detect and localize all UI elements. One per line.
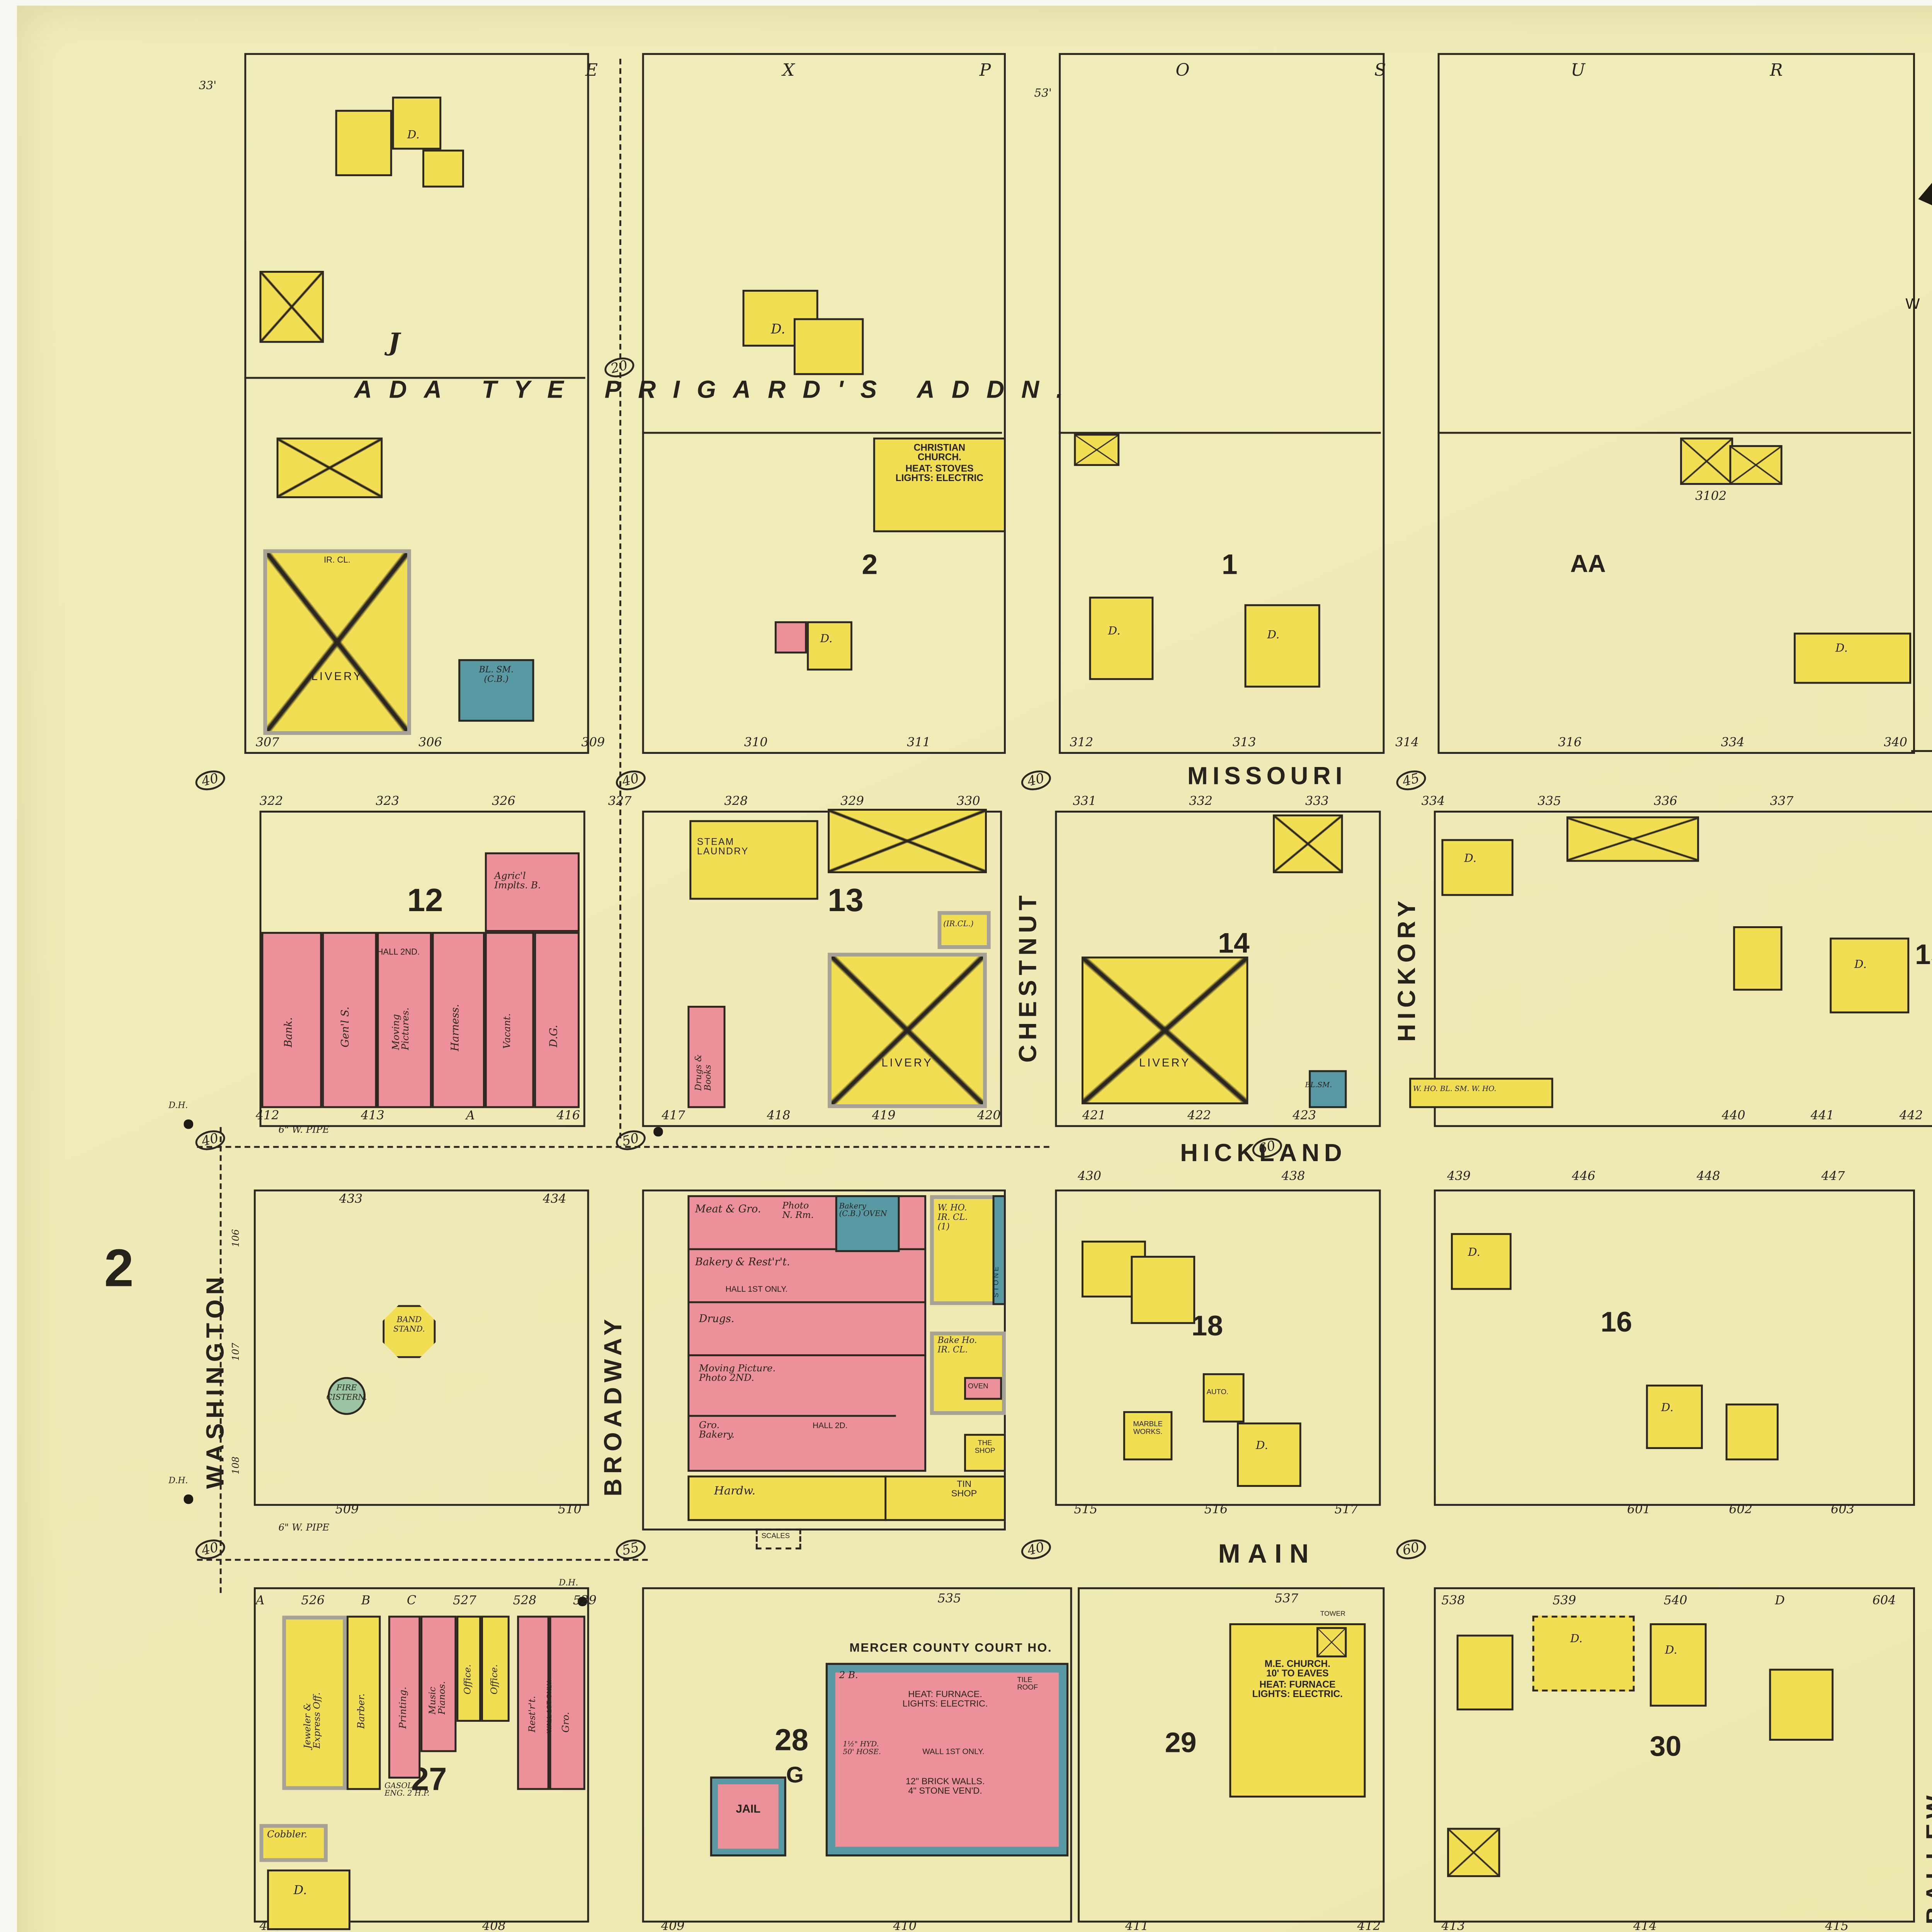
dwelling <box>1532 1616 1635 1691</box>
block-15-number: 15 <box>1915 941 1932 972</box>
livery-13-label: LIVERY <box>847 1059 968 1071</box>
hydrant-hose-label: 1½" HYD. 50' HOSE. <box>843 1741 881 1756</box>
dwelling <box>1650 1623 1707 1707</box>
barn <box>260 271 324 343</box>
steam-laundry-label: STEAM LAUNDRY <box>697 839 749 860</box>
office-2-label: Office. <box>492 1630 501 1695</box>
iron-clad-label: (IR.CL.) <box>943 920 973 929</box>
lot-line <box>1438 432 1912 434</box>
dwelling <box>1131 1256 1195 1324</box>
barn <box>1273 815 1343 873</box>
dry-goods-label: D.G. <box>551 983 563 1048</box>
lot-numbers-missouri-north: 3073063093103113123133143163343403413423… <box>256 735 1932 750</box>
me-church-label: M.E. CHURCH. 10' TO EAVES HEAT: FURNACE … <box>1233 1661 1362 1702</box>
gasoline-engine-label: GASOL. ENG. 2 H.P. <box>384 1782 429 1799</box>
lot-numbers-main-north-18: 515516517 <box>1074 1502 1358 1517</box>
dwelling <box>335 110 392 176</box>
bakery-restaurant-label: Bakery & Rest'r't. <box>695 1260 790 1271</box>
barn <box>277 437 383 498</box>
blacksmith-label: BL. SM. (C.B.) <box>462 668 530 687</box>
street-ballew: BALLEW <box>1923 1688 1932 1925</box>
hydrant-label: D.H. <box>168 1104 188 1114</box>
lot-106: 106 <box>233 1229 243 1247</box>
bake-house-label: Bake Ho. IR. CL. <box>937 1339 977 1358</box>
lot-numbers-hickland-south2: 439446448447 <box>1447 1169 1845 1184</box>
dwelling <box>1245 604 1320 688</box>
lot-numbers-hickland-south: 430438 <box>1078 1169 1305 1184</box>
street-width-badge: 40 <box>1019 1537 1053 1562</box>
oven-label: OVEN <box>968 1383 988 1390</box>
dwelling-label: D. <box>1108 627 1121 639</box>
addition-ada-tye-top: ADA TYE PRIGARD'S ADDN. <box>354 377 1301 403</box>
street-width-badge: 40 <box>193 1537 227 1562</box>
livery-label: LIVERY <box>279 672 396 685</box>
dwelling-label: D. <box>1835 644 1848 656</box>
block-28-number: 28 <box>775 1726 808 1759</box>
lot-numbers-missouri-south: 3223233263273283293303313323333343353363… <box>260 794 1794 809</box>
lot-535: 535 <box>937 1593 961 1606</box>
hall-1st-label: HALL 1ST ONLY. <box>725 1286 787 1295</box>
jail-label: JAIL <box>712 1805 784 1818</box>
barn <box>1680 437 1733 485</box>
dwelling-label: D. <box>1256 1441 1268 1454</box>
block-1-number: 1 <box>1222 551 1238 582</box>
lot-line <box>642 432 1002 434</box>
dwelling <box>1646 1384 1703 1449</box>
dwelling-label: D. <box>820 634 833 647</box>
dwelling <box>422 150 464 187</box>
block-18-outline <box>1055 1189 1381 1506</box>
lot-numbers-park-north: 433434 <box>339 1191 566 1206</box>
water-pipe-line <box>619 59 621 1138</box>
moving-picture-label: Moving Picture. Photo 2ND. <box>699 1366 776 1386</box>
courthouse-systems: HEAT: FURNACE. LIGHTS: ELECTRIC. <box>850 1691 1040 1711</box>
hall-2d-label: HALL 2D. <box>813 1422 848 1431</box>
dwelling <box>794 318 864 375</box>
warehouse-label: W. HO. IR. CL. (1) <box>937 1207 968 1234</box>
lot-numbers-water-north-east: 413414415 <box>1441 1919 1849 1932</box>
dwelling <box>1451 1233 1512 1290</box>
pipe-label: 6" W. PIPE <box>279 1127 330 1137</box>
bank-label: Bank. <box>286 975 297 1047</box>
street-width-badge: 40 <box>1019 767 1053 793</box>
dwelling <box>267 1869 350 1930</box>
vacant-store-label: Vacant. <box>504 973 514 1049</box>
dwelling <box>1830 937 1909 1013</box>
dwelling-label: D. <box>1570 1634 1583 1647</box>
party-wall <box>687 1354 926 1356</box>
street-width-badge: 60 <box>1394 1537 1428 1562</box>
map-paper: EXPOSURES 33' 53' 3 Apr. 1913. PRINCETON… <box>17 6 1932 1932</box>
dim-53: 53' <box>1034 89 1052 101</box>
pipe-label: 6" W. PIPE <box>279 1525 330 1535</box>
jeweler-label: Jeweler & Express Off. <box>304 1639 324 1748</box>
party-wall <box>687 1415 896 1417</box>
wall-note-court: WALL 1ST ONLY. <box>922 1748 985 1757</box>
lot-108: 108 <box>233 1456 243 1475</box>
auto-label: AUTO. <box>1207 1388 1229 1396</box>
warehouse-row-label: W. HO. BL. SM. W. HO. <box>1413 1085 1497 1093</box>
hydrant-dot <box>653 1127 662 1136</box>
dwelling-label: D. <box>1468 1248 1480 1260</box>
dwelling-label: D. <box>771 324 785 338</box>
lot-107: 107 <box>233 1343 243 1361</box>
hydrant-label: D.H. <box>168 1479 188 1488</box>
party-wall <box>687 1301 926 1303</box>
bakery-oven-label: Bakery (C.B.) OVEN <box>839 1203 887 1219</box>
dwelling-label: D. <box>294 1884 307 1898</box>
street-broadway: BROADWAY <box>600 1241 627 1497</box>
lot-numbers-main-south-west: A526BC527528529 <box>256 1593 597 1608</box>
dwelling <box>1733 926 1782 991</box>
agricultural-implements-label: Agric'l Implts. B. <box>494 873 541 894</box>
water-pipe-line <box>197 1559 648 1561</box>
building-livery-nw <box>263 549 411 735</box>
block-28-letter-g: G <box>786 1764 804 1788</box>
dwelling-label: D. <box>1661 1403 1673 1416</box>
printing-label: Printing. <box>400 1657 410 1729</box>
music-label: Music Pianos. <box>430 1643 449 1714</box>
block-aa-number: AA <box>1570 551 1606 578</box>
drugs-books-label: Drugs & Books <box>697 1015 716 1091</box>
lot-line <box>1911 750 1932 752</box>
dwelling <box>1769 1669 1833 1741</box>
block-letter-j: J <box>388 332 400 358</box>
block-16-number: 16 <box>1600 1309 1632 1339</box>
dwelling-label: D. <box>1854 960 1867 973</box>
building-livery-13 <box>828 953 987 1108</box>
street-width-badge: 40 <box>193 767 227 793</box>
general-store-label: Gen'l S. <box>343 975 354 1047</box>
church-tower <box>1316 1627 1347 1657</box>
dim-33: 33' <box>199 82 217 94</box>
building-steam-laundry <box>689 820 818 900</box>
street-hickory: HICKORY <box>1394 824 1421 1042</box>
dwelling-label: D. <box>407 131 420 143</box>
christian-church-label: CHRISTIAN CHURCH. HEAT: STOVES LIGHTS: E… <box>877 445 1002 486</box>
livery-ircl-label: IR. CL. <box>282 557 392 566</box>
block-13-number: 13 <box>828 884 864 919</box>
block-12-number: 12 <box>407 884 443 919</box>
barber-label: Barber. <box>359 1664 369 1729</box>
scales-label: SCALES <box>762 1532 790 1540</box>
dwelling-label: D. <box>1267 631 1279 643</box>
fire-cistern-label: FIRE CISTERN. <box>301 1384 392 1401</box>
barn <box>828 809 987 873</box>
building-auto <box>1203 1373 1245 1422</box>
courthouse-2b: 2 B. <box>839 1672 858 1682</box>
sanborn-map-sheet: EXPOSURES 33' 53' 3 Apr. 1913. PRINCETON… <box>0 0 1932 1932</box>
lot-numbers-hickland-north: 412413A416417418419420421422423 <box>256 1108 1316 1123</box>
street-width-badge: 45 <box>1394 767 1428 793</box>
dwelling <box>1794 633 1911 684</box>
meat-grocery-label: Meat & Gro. <box>695 1207 761 1218</box>
hardware-label: Hardw. <box>714 1487 755 1499</box>
livery-14-label: LIVERY <box>1100 1059 1229 1071</box>
tower-label: TOWER <box>1320 1612 1345 1619</box>
grocery-label: Gro. <box>563 1668 573 1733</box>
dwelling-label: D. <box>1464 854 1476 867</box>
drugs-label: Drugs. <box>699 1316 735 1328</box>
adjacent-sheet-ref: 2 <box>104 1241 134 1298</box>
office-1-label: Office. <box>465 1630 474 1695</box>
wall-note-27: WALL 1ST ONLY. <box>548 1657 555 1733</box>
block-30-number: 30 <box>1650 1733 1682 1764</box>
harness-label: Harness. <box>453 972 464 1051</box>
lot-numbers-water-north-mid: 409410411412 <box>661 1919 1381 1932</box>
tin-shop-label: TIN SHOP <box>930 1481 998 1501</box>
stone-label: S T O N E <box>995 1203 1002 1298</box>
block-14-number: 14 <box>1218 930 1250 961</box>
barn <box>1566 816 1699 862</box>
barn <box>1074 434 1119 466</box>
party-wall <box>884 1476 886 1521</box>
hydrant-dot <box>184 1119 192 1128</box>
dwelling <box>1726 1403 1779 1460</box>
tile-roof-label: TILE ROOF <box>1017 1676 1038 1692</box>
barn <box>1730 445 1782 485</box>
iron-clad-shed <box>937 911 990 949</box>
cobbler-label: Cobbler. <box>267 1832 307 1842</box>
dwelling-label: D. <box>1665 1646 1677 1658</box>
blacksmith-14-label: BL.SM. <box>1305 1082 1332 1089</box>
building-livery-14 <box>1082 957 1248 1104</box>
restaurant-label: Rest'r't. <box>529 1660 539 1732</box>
lot-537: 537 <box>1275 1593 1298 1606</box>
brick-walls-note: 12" BRICK WALLS. 4" STONE VEN'D. <box>850 1779 1040 1798</box>
street-chestnut: CHESTNUT <box>1015 816 1042 1063</box>
the-shop-label: THE SHOP <box>964 1440 1006 1455</box>
street-width-badge: 40 <box>193 1128 227 1153</box>
grocery-bakery-label: Gro. Bakery. <box>699 1422 735 1443</box>
barn <box>1447 1828 1500 1877</box>
dwelling <box>1441 839 1513 896</box>
lot-numbers-main-north-16: 601602603 <box>1627 1502 1854 1517</box>
lot-numbers-hickland-north-east: 440441442443444 <box>1722 1108 1932 1123</box>
street-missouri: MISSOURI <box>1144 764 1390 790</box>
street-washington: WASHINGTON <box>203 1195 230 1489</box>
lot-3102: 3102 <box>1695 491 1726 504</box>
band-stand-label: BAND STAND. <box>383 1316 435 1333</box>
dwelling <box>1457 1634 1514 1710</box>
dwelling <box>1237 1422 1301 1487</box>
hydrant-label: D.H. <box>559 1582 578 1591</box>
lot-numbers-main-south-mid: 538539540D604 <box>1441 1593 1896 1608</box>
hall-2nd-label: HALL 2ND. <box>377 949 420 958</box>
water-pipe-line <box>197 1146 1049 1148</box>
street-width-badge: 55 <box>614 1537 648 1562</box>
street-width-badge: 40 <box>614 767 648 793</box>
street-main: MAIN <box>1153 1540 1381 1568</box>
store <box>775 621 807 653</box>
moving-pictures-label: Moving Pictures. <box>393 967 414 1050</box>
courthouse-title: MERCER COUNTY COURT HO. <box>771 1642 1131 1655</box>
block-2-number: 2 <box>862 551 878 582</box>
photo-room-label: Photo N. Rm. <box>782 1203 814 1223</box>
hydrant-dot <box>184 1495 192 1503</box>
block-18-number: 18 <box>1191 1313 1223 1343</box>
water-pipe-line <box>220 1127 222 1593</box>
lot-numbers-main-north-park: 509510 <box>335 1502 582 1517</box>
block-29-number: 29 <box>1165 1730 1197 1760</box>
street-width-badge: 50 <box>614 1128 648 1153</box>
marble-works-label: MARBLE WORKS. <box>1116 1421 1180 1436</box>
